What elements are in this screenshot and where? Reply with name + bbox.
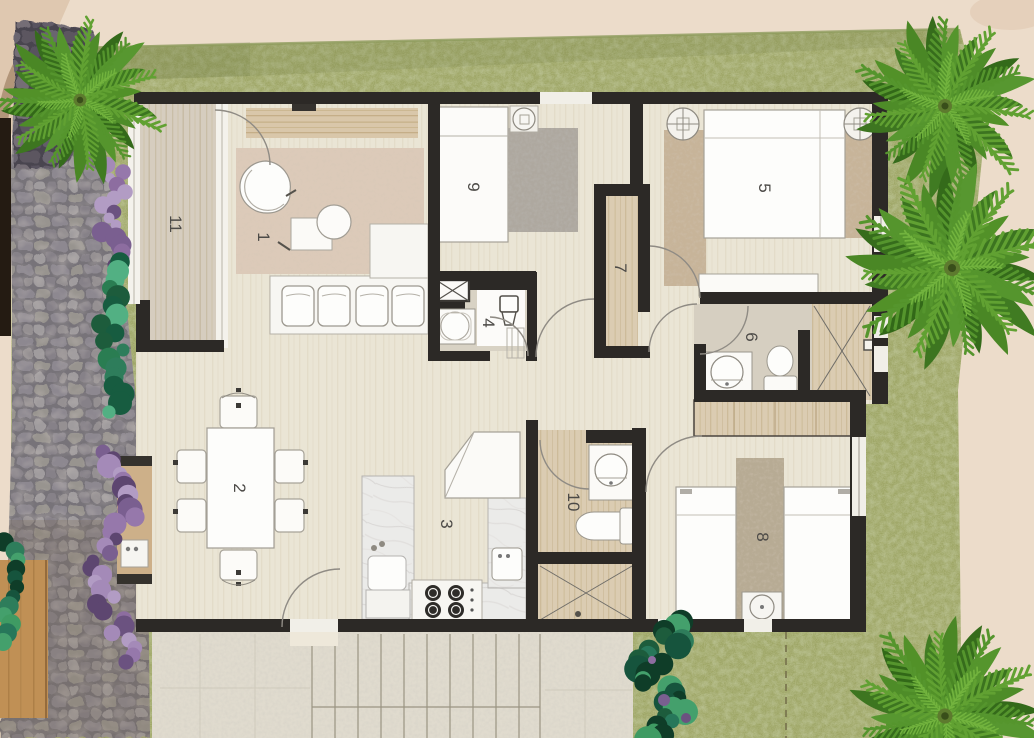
svg-text:7: 7	[611, 263, 630, 272]
svg-text:6: 6	[742, 332, 761, 341]
svg-text:11: 11	[166, 215, 185, 233]
svg-text:10: 10	[564, 493, 583, 512]
svg-text:2: 2	[230, 483, 249, 492]
svg-text:8: 8	[753, 532, 772, 541]
svg-text:9: 9	[464, 182, 483, 191]
svg-text:5: 5	[755, 183, 774, 192]
svg-text:1: 1	[254, 232, 273, 241]
svg-text:3: 3	[437, 519, 456, 528]
svg-text:4: 4	[479, 318, 498, 327]
